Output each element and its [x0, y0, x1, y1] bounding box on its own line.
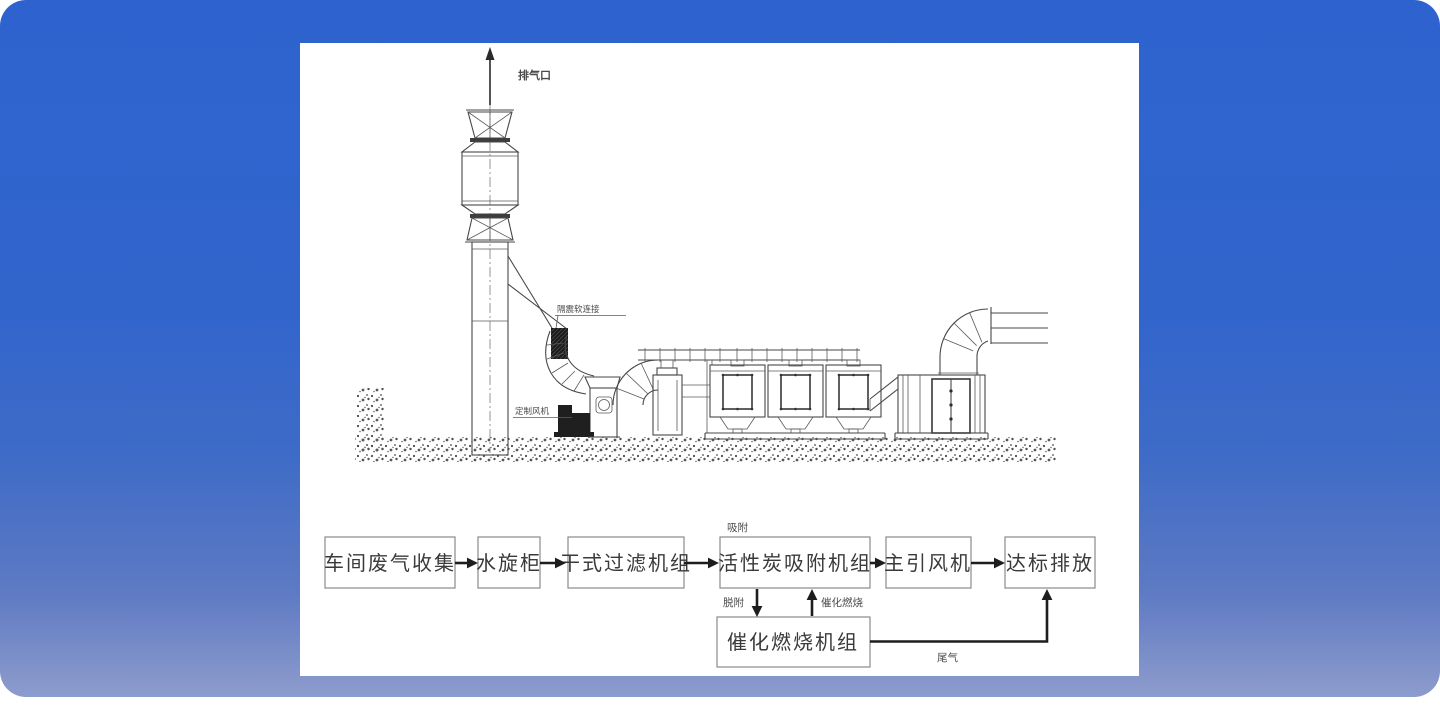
catalytic-combustion-label: 催化燃烧: [821, 596, 863, 609]
horizontal-duct: [638, 348, 860, 362]
chimney-lower-frame: [465, 218, 515, 242]
process-flowchart: 车间废气收集 水旋柜 干式过滤机组 活性炭吸附机组 主引风机 达标排放 催化燃烧…: [324, 521, 1095, 667]
fan-outlet-elbow: [613, 360, 658, 405]
desorption-label: 脱附: [723, 596, 744, 609]
process-diagram-svg: 排气口: [300, 43, 1139, 676]
flow-label-workshop-collection: 车间废气收集: [324, 552, 456, 575]
custom-fan-label: 定制风机: [515, 406, 550, 416]
cabinet-inlet-duct: [870, 377, 898, 411]
chimney-top-frame: [466, 110, 514, 142]
flow-label-compliant-discharge: 达标排放: [1006, 552, 1094, 575]
filter-box-row: [705, 360, 885, 439]
flow-label-main-fan: 主引风机: [884, 552, 972, 575]
adsorption-label: 吸附: [727, 521, 748, 534]
equipment-drawing: 排气口: [355, 47, 1057, 462]
screenshot-stage: 排气口: [0, 0, 1440, 720]
tail-gas-label: 尾气: [937, 651, 958, 664]
filter-box-1: [710, 360, 765, 433]
cabinet-unit: [895, 357, 988, 439]
flex-connector-callout: 隔震软连接: [555, 304, 626, 328]
desorption-arrow: [752, 589, 763, 617]
exhaust-outlet-label: 排气口: [518, 68, 551, 82]
flow-label-carbon-adsorption-unit: 活性炭吸附机组: [718, 552, 872, 575]
ground-texture: [355, 388, 1057, 462]
flow-label-catalytic-combustion-unit: 催化燃烧机组: [727, 631, 859, 654]
cabinet-outlet-elbow: [940, 307, 1048, 357]
flow-label-dry-filter-unit: 干式过滤机组: [560, 552, 692, 575]
prefilter-box: [653, 360, 710, 435]
chimney-branch-duct: [508, 256, 567, 329]
flow-label-water-spin-cabinet: 水旋柜: [476, 552, 542, 575]
tail-gas-line: [870, 589, 1052, 642]
exhaust-arrow: [486, 47, 495, 105]
flex-connector-label: 隔震软连接: [557, 304, 600, 314]
filter-box-2: [768, 360, 823, 433]
catalytic-return-arrow: [807, 589, 818, 616]
diagram-panel: 排气口: [300, 43, 1139, 676]
